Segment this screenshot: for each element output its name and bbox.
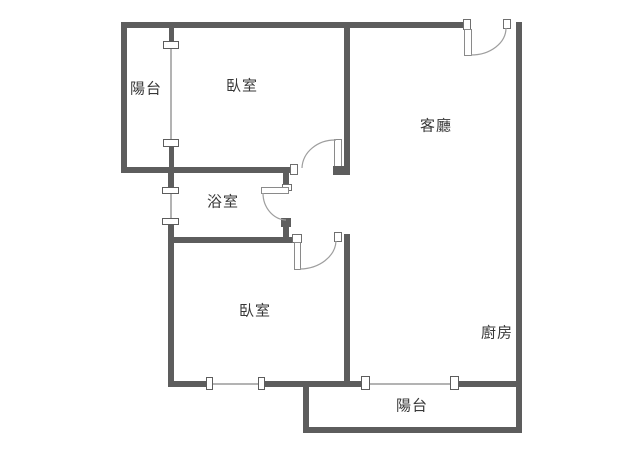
window-tick-icon — [163, 41, 179, 49]
window-tick-icon — [162, 187, 179, 194]
entrance-door-jamb — [503, 19, 511, 29]
bedroom-bottom-door-jamb — [334, 232, 342, 242]
room-label-bedroom-bottom: 臥室 — [239, 300, 271, 321]
door-swing-arcs — [0, 0, 640, 461]
window-tick-icon — [361, 376, 370, 390]
bedroom-top-door-arc-icon — [302, 140, 336, 168]
room-label-bedroom-top: 臥室 — [226, 75, 258, 96]
window-tick-icon — [450, 376, 459, 390]
bedroom-top-door-jamb — [290, 164, 298, 175]
wall-bedroom-living-divider — [344, 22, 350, 175]
bathroom-door-leaf — [261, 187, 289, 194]
room-label-living-room: 客廳 — [420, 115, 452, 136]
room-label-balcony-bottom: 陽台 — [396, 395, 428, 416]
room-label-kitchen: 廚房 — [481, 322, 513, 343]
window-tick-icon — [163, 139, 179, 147]
wall-balcony-divider-stub-top — [169, 22, 174, 43]
window-bedroom2 — [208, 383, 260, 385]
wall-right — [516, 22, 522, 433]
bathroom-door-arc-icon — [263, 193, 286, 220]
window-tick-icon — [162, 218, 179, 225]
room-label-bathroom: 浴室 — [207, 191, 239, 212]
entrance-door-arc-icon — [471, 28, 506, 55]
bedroom-bottom-door-leaf — [294, 242, 301, 270]
window-bathroom — [170, 193, 172, 220]
bedroom-bottom-door-arc-icon — [300, 241, 336, 269]
bathroom-door-hinge — [281, 218, 291, 227]
bedroom-top-door-hinge — [333, 166, 345, 175]
floor-plan: 陽台 臥室 客廳 浴室 臥室 廚房 陽台 — [0, 0, 640, 461]
wall-balcony2-bottom — [303, 427, 516, 433]
room-label-balcony-top: 陽台 — [130, 78, 162, 99]
entrance-door-leaf — [464, 29, 472, 56]
wall-bedroom2-right — [344, 234, 350, 386]
wall-bottom-a — [168, 381, 208, 387]
bedroom-top-door-leaf — [334, 139, 342, 168]
wall-left-lower — [168, 224, 174, 386]
wall-left-upper — [121, 22, 127, 173]
window-tick-icon — [258, 377, 265, 390]
window-kitchen-balcony — [368, 383, 454, 385]
window-tick-icon — [206, 377, 213, 390]
wall-bedroom2-top — [168, 237, 293, 243]
wall-bottom-b — [265, 381, 363, 387]
window-balcony-divider — [170, 47, 172, 142]
wall-bathroom-top — [121, 167, 293, 173]
wall-bottom-c — [459, 381, 516, 387]
wall-balcony-divider-stub-bottom — [169, 146, 174, 173]
